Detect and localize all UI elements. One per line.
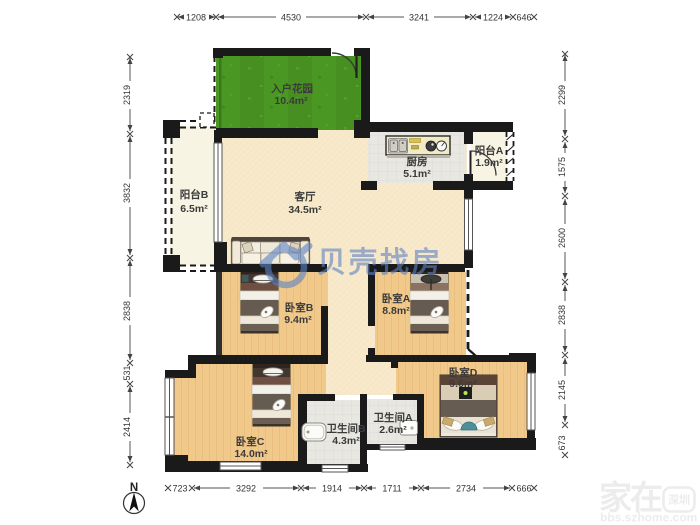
svg-text:深圳: 深圳 [668,493,690,507]
svg-text:入户花园: 入户花园 [271,82,313,95]
svg-text:1208: 1208 [186,13,206,23]
svg-text:2145: 2145 [557,380,567,400]
svg-text:5.1m²: 5.1m² [403,168,431,180]
svg-text:2299: 2299 [557,85,567,105]
svg-text:1914: 1914 [322,484,342,494]
svg-text:10.4m²: 10.4m² [274,95,308,107]
svg-text:673: 673 [557,435,567,450]
svg-text:723: 723 [172,484,187,494]
svg-text:531: 531 [122,365,132,380]
svg-text:卧室B: 卧室B [285,301,314,314]
svg-text:3241: 3241 [409,13,429,23]
svg-text:8.8m²: 8.8m² [382,305,410,317]
svg-text:4.3m²: 4.3m² [332,435,360,447]
svg-text:3292: 3292 [236,484,256,494]
svg-text:9.6m²: 9.6m² [449,378,477,390]
svg-text:2.6m²: 2.6m² [379,424,407,436]
svg-text:阳台A: 阳台A [475,144,504,157]
svg-text:卫生间A: 卫生间A [373,411,412,424]
svg-text:1.9m²: 1.9m² [475,157,503,169]
svg-text:客厅: 客厅 [294,190,316,203]
svg-text:34.5m²: 34.5m² [288,204,322,216]
svg-text:1224: 1224 [483,13,503,23]
svg-text:2319: 2319 [122,85,132,105]
svg-text:1575: 1575 [557,157,567,177]
svg-text:4530: 4530 [281,13,301,23]
svg-text:646: 646 [516,13,531,23]
svg-text:2600: 2600 [557,228,567,248]
svg-text:贝壳找房: 贝壳找房 [317,246,443,279]
svg-text:666: 666 [516,484,531,494]
svg-text:bbs.szhome.com: bbs.szhome.com [600,511,697,525]
svg-text:阳台B: 阳台B [180,188,209,201]
svg-text:2414: 2414 [122,417,132,437]
svg-text:2838: 2838 [557,305,567,325]
svg-text:6.5m²: 6.5m² [180,203,208,215]
svg-text:卧室C: 卧室C [236,435,265,448]
svg-text:2734: 2734 [456,484,476,494]
svg-text:厨房: 厨房 [407,155,428,168]
svg-text:14.0m²: 14.0m² [234,448,268,460]
svg-text:3832: 3832 [122,183,132,203]
svg-text:2838: 2838 [122,301,132,321]
svg-text:卧室A: 卧室A [382,292,411,305]
svg-text:9.4m²: 9.4m² [284,314,312,326]
svg-text:1711: 1711 [382,484,401,494]
svg-text:卫生间B: 卫生间B [326,422,365,435]
